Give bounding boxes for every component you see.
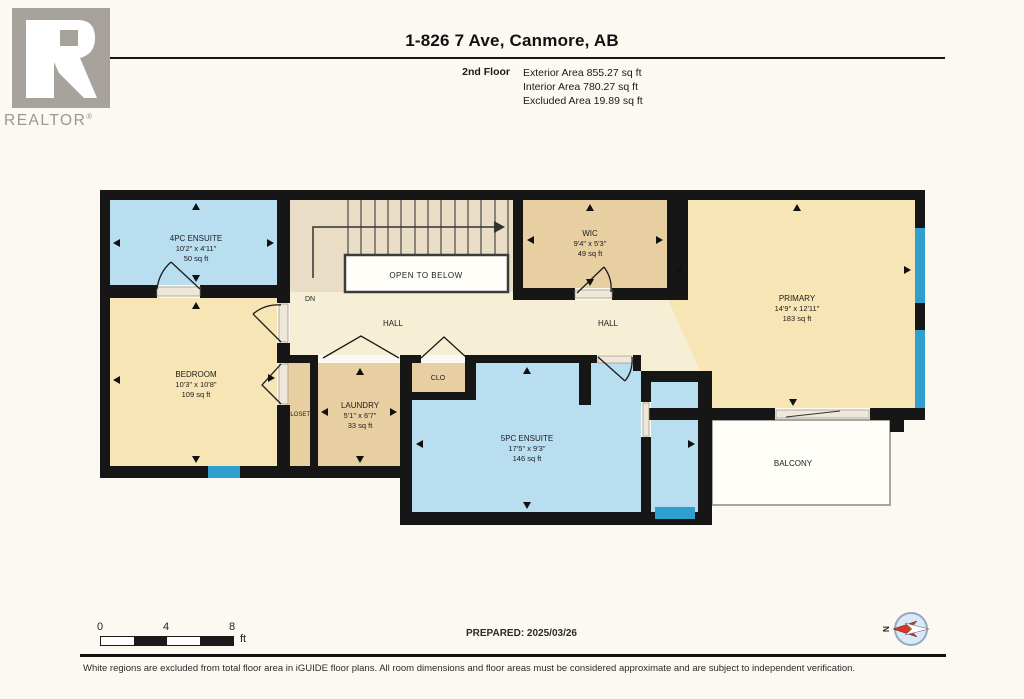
room-laundry-area: 33 sq ft [348, 421, 374, 430]
scale-tick-4: 4 [163, 621, 169, 633]
room-wic-name: WIC [582, 229, 598, 238]
balcony-label: BALCONY [774, 459, 813, 468]
dn-label: DN [305, 296, 315, 303]
hall-right-label: HALL [598, 319, 619, 328]
window-water-closet [655, 507, 695, 519]
closet-label: CLOSET [286, 412, 310, 418]
room-4pc-dims: 10'2" x 4'11" [176, 244, 217, 253]
window-bedroom [208, 466, 240, 478]
room-5pc-area: 146 sq ft [513, 454, 543, 463]
room-bedroom-area: 109 sq ft [182, 390, 212, 399]
room-primary-dims: 14'9" x 12'11" [775, 304, 820, 313]
scale-tick-0: 0 [97, 621, 103, 633]
room-laundry-name: LAUNDRY [341, 401, 380, 410]
room-bedroom-name: BEDROOM [175, 370, 217, 379]
clo-label: CLO [431, 375, 446, 382]
room-wic-dims: 9'4" x 5'3" [574, 239, 607, 248]
realtor-logo-icon [12, 8, 110, 108]
room-5pc-dims: 17'5" x 9'3" [509, 444, 546, 453]
window-primary-lower [915, 330, 925, 408]
room-4pc-area: 50 sq ft [184, 254, 210, 263]
floor-plan-page: 1-826 7 Ave, Canmore, AB 2nd Floor Exter… [0, 0, 1024, 699]
floor-plan-svg: 4PC ENSUITE 10'2" x 4'11" 50 sq ft WIC 9… [0, 0, 1024, 699]
prepared-date: PREPARED: 2025/03/26 [466, 628, 577, 639]
room-primary-name: PRIMARY [779, 294, 816, 303]
disclaimer-text: White regions are excluded from total fl… [83, 663, 963, 674]
room-bedroom-dims: 10'3" x 10'8" [175, 380, 216, 389]
water-closet-area [651, 382, 698, 512]
room-4pc-name: 4PC ENSUITE [170, 234, 222, 243]
scale-unit-label: ft [240, 633, 246, 645]
room-wic-area: 49 sq ft [578, 249, 604, 258]
compass-north-label: N [881, 626, 891, 632]
scale-bar [100, 636, 234, 646]
room-5pc-name: 5PC ENSUITE [501, 434, 553, 443]
hall-left-label: HALL [383, 319, 404, 328]
room-laundry-dims: 5'1" x 6'7" [344, 411, 377, 420]
scale-tick-8: 8 [229, 621, 235, 633]
window-primary-upper [915, 228, 925, 303]
footer-rule [80, 654, 946, 657]
compass-icon: N [881, 613, 929, 645]
room-primary-area: 183 sq ft [783, 314, 813, 323]
open-to-below-label: OPEN TO BELOW [389, 271, 462, 280]
